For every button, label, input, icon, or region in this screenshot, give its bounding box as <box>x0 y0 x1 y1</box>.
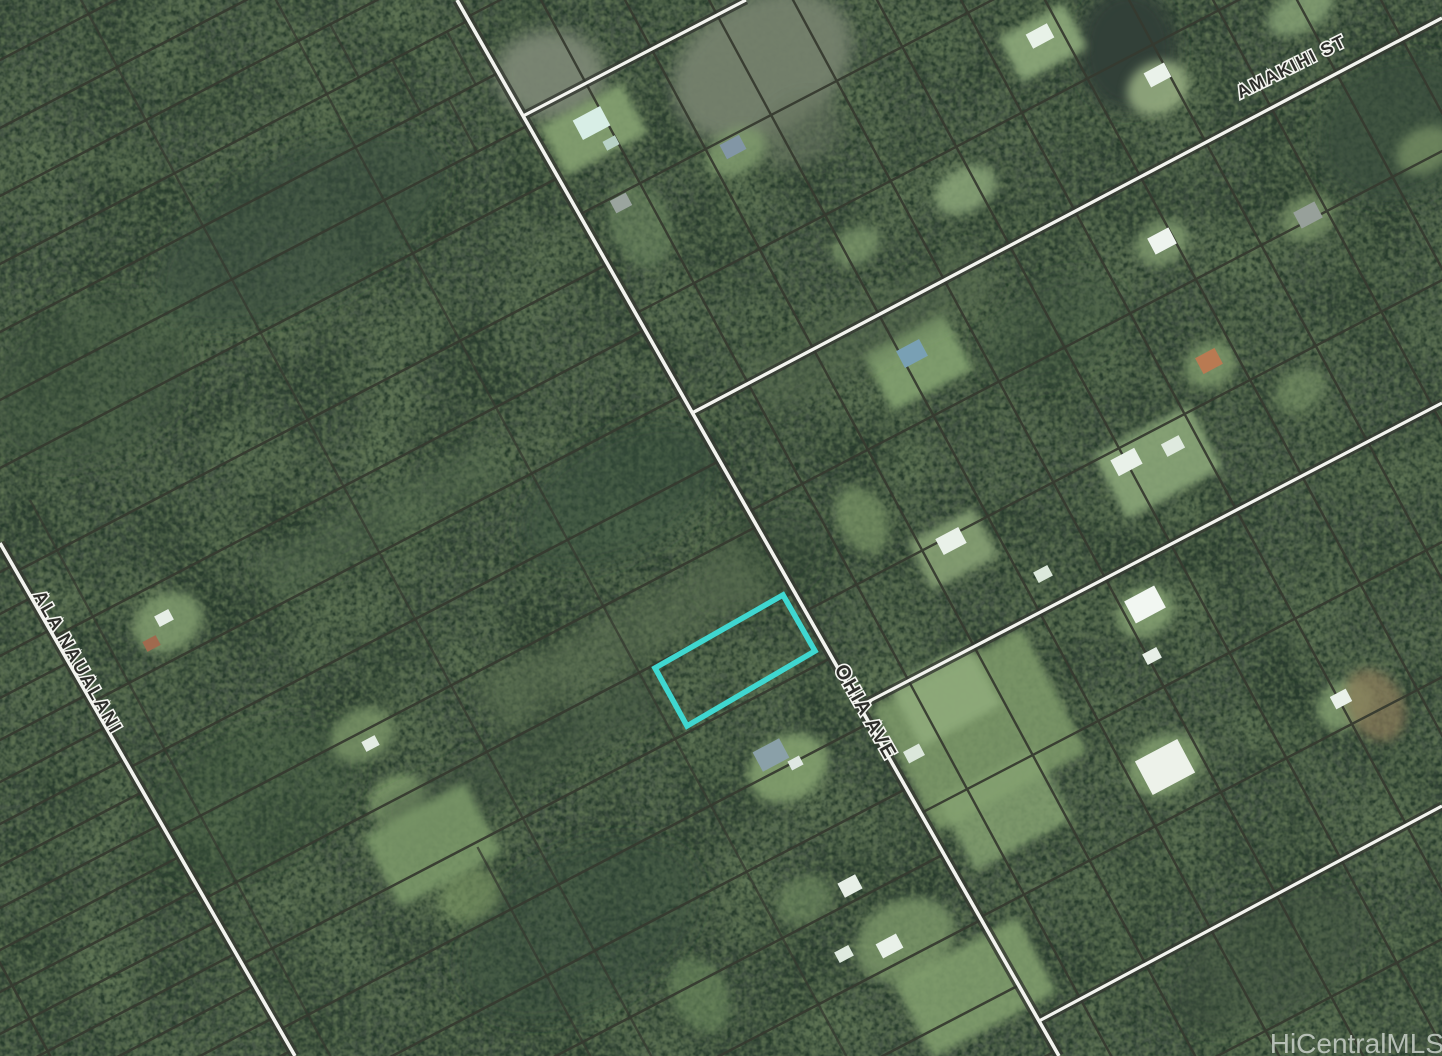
svg-text:HiCentralMLS: HiCentralMLS <box>1270 1028 1442 1056</box>
